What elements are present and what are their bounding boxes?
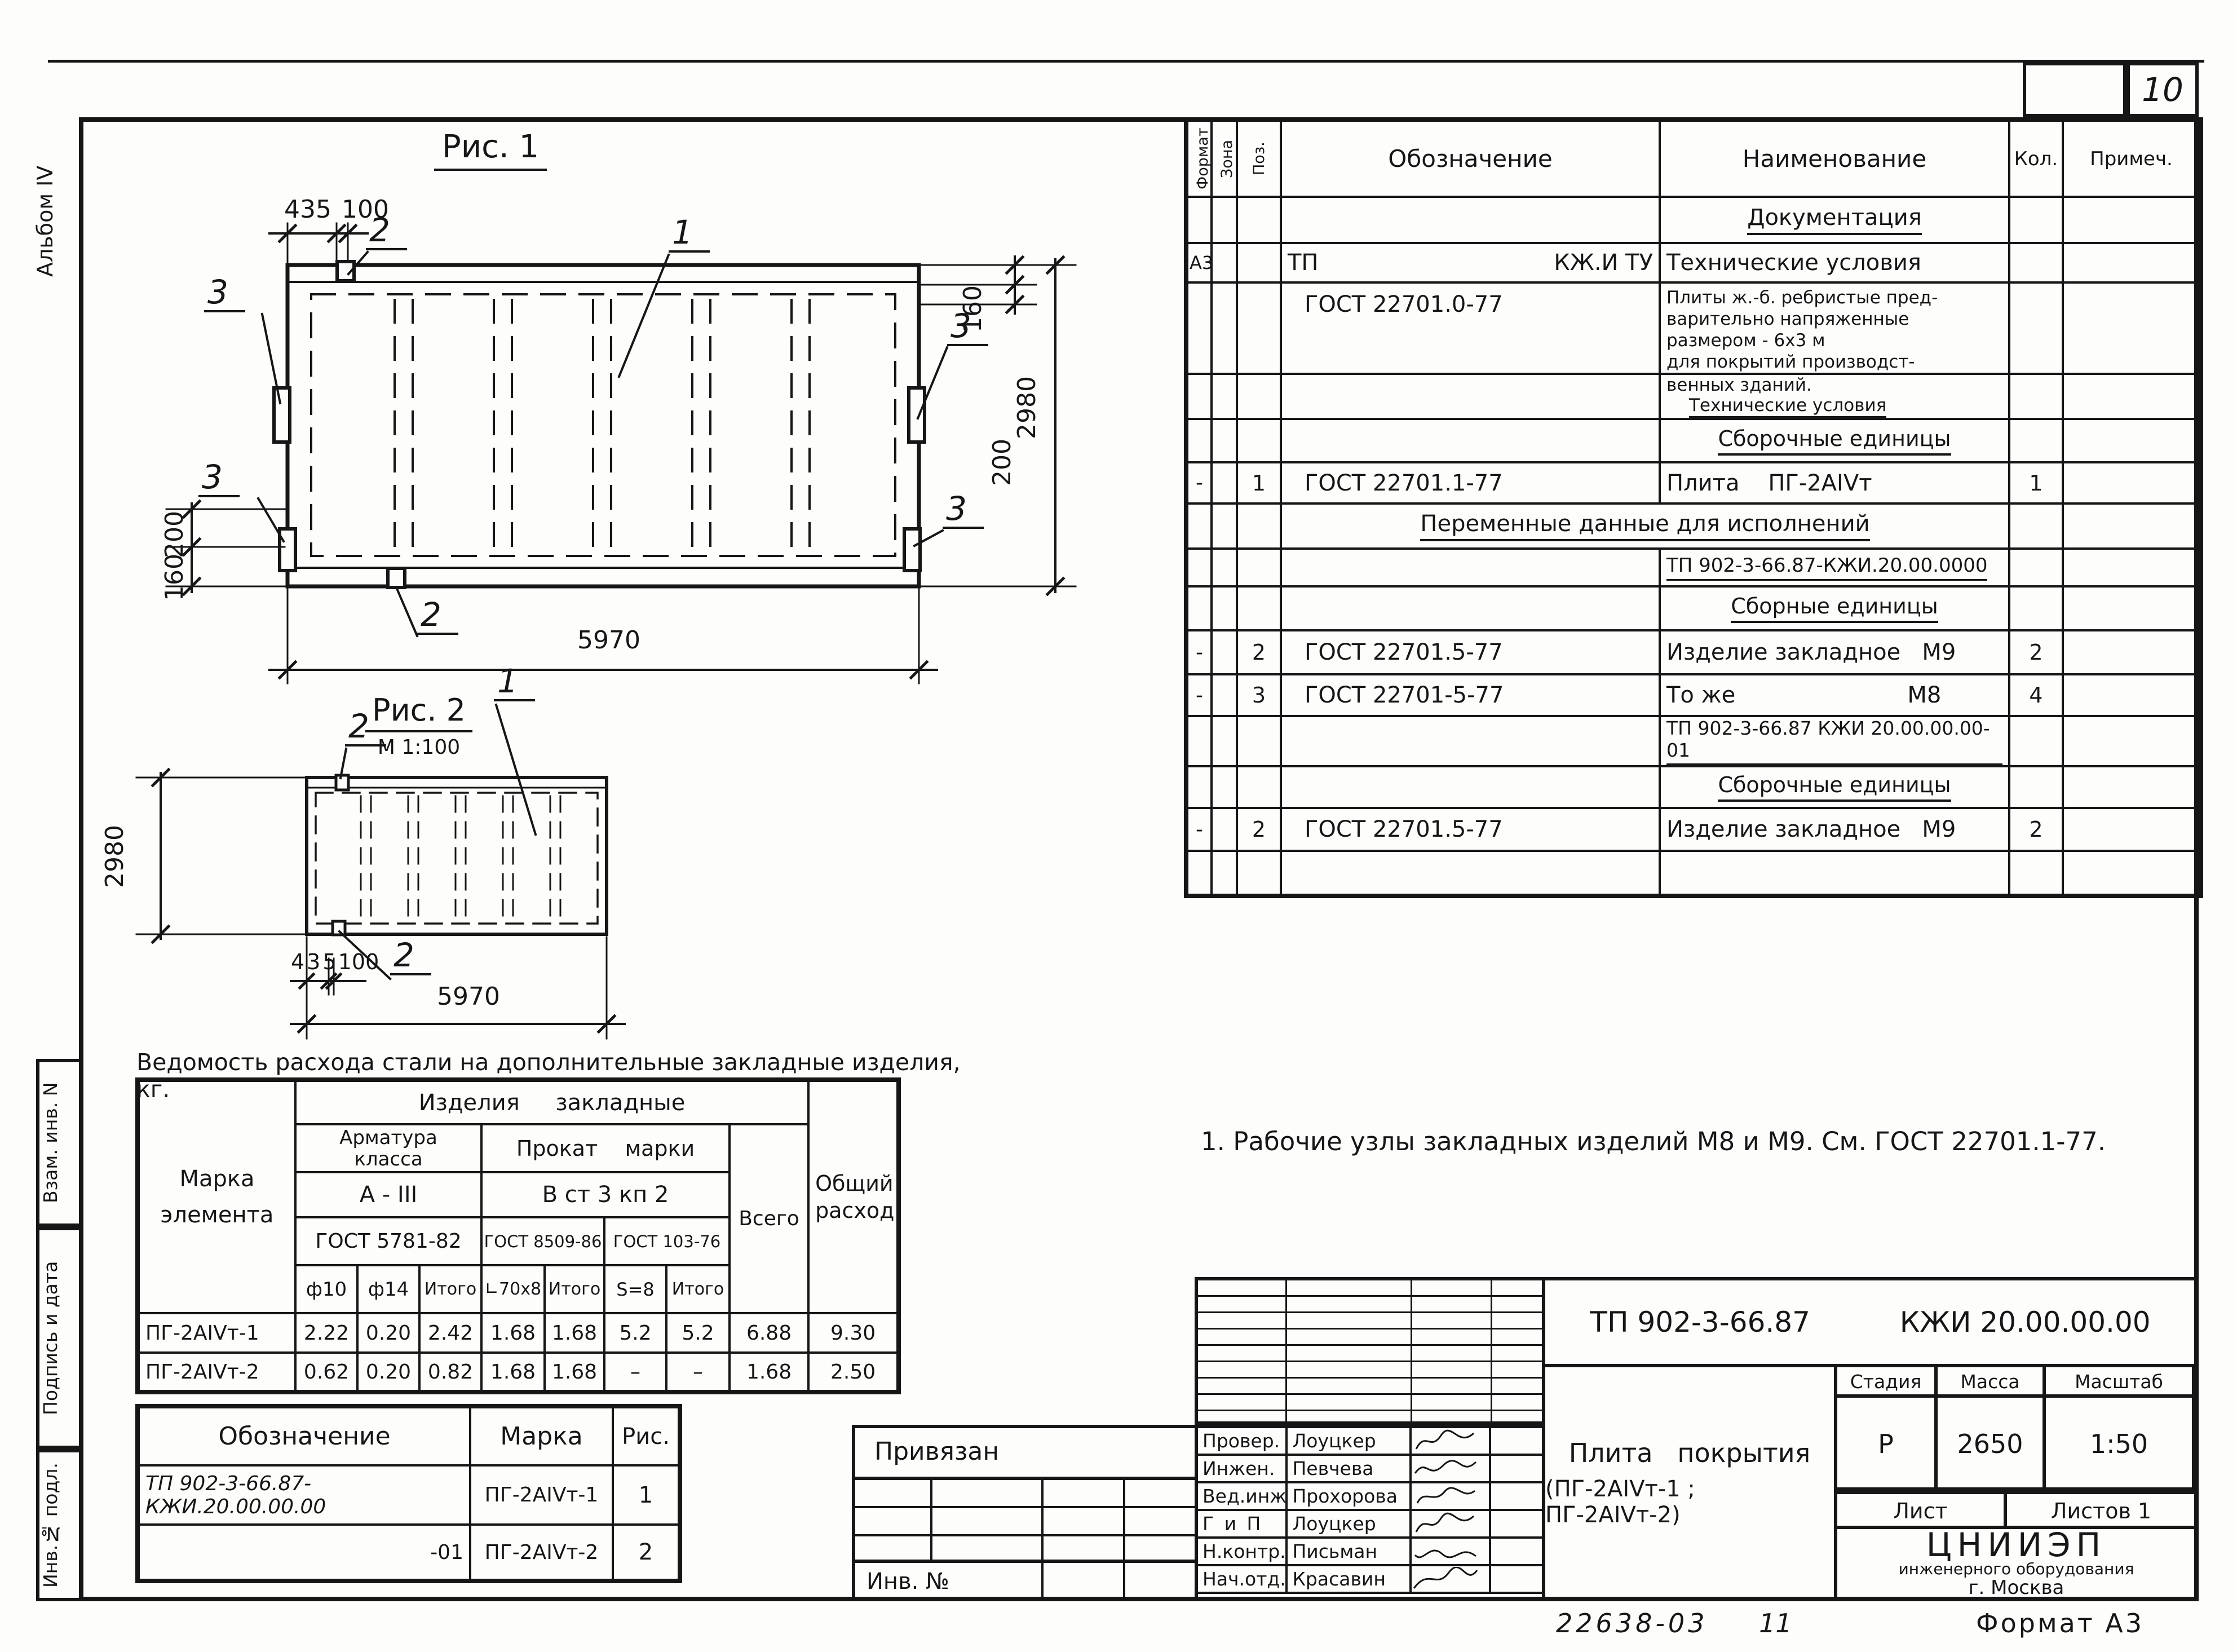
stamp-smm-block: Стадия Масса Масштаб Р 2650 1:50 — [1834, 1364, 2199, 1494]
spec-col-kol: Кол. — [2009, 120, 2063, 197]
fig1-rib-contour — [311, 294, 895, 556]
org-city: г. Москва — [1969, 1578, 2064, 1598]
spec-col-name: Наименование — [1660, 120, 2009, 197]
stamp-name: Прохорова — [1288, 1483, 1412, 1511]
fig2-callout-2-top: 2 — [345, 709, 386, 747]
designation-table: Обозначение Марка Рис. ТП 902-3-66.87-КЖ… — [135, 1404, 682, 1583]
steel-table: Марка элемента Изделия закладные Общий р… — [135, 1077, 901, 1394]
steel-h-itogo3: Итого — [666, 1265, 730, 1313]
spec-row-sborochnye-1: Сборочные единицы — [1186, 419, 2201, 462]
signature-cell — [1412, 1511, 1491, 1539]
des-row-2: -01 ПГ-2АIVт-2 2 — [138, 1525, 680, 1581]
spec-row-gost0b: венных зданий.Технические условия — [1186, 374, 2201, 419]
stamp-role: Н.контр. — [1198, 1539, 1288, 1566]
spec-col-prim: Примеч. — [2063, 120, 2201, 197]
stamp-name: Лоуцкер — [1288, 1511, 1412, 1539]
fig2-dimension-ticks — [153, 770, 614, 1032]
org-name: ЦНИИЭП — [1926, 1529, 2107, 1561]
fig1-callout-2-top: 2 — [366, 213, 407, 250]
inv-no-label: Инв. № — [855, 1563, 1195, 1594]
steel-h-armatura: Арматура класса — [295, 1124, 481, 1172]
signature-cell — [1412, 1456, 1491, 1483]
stamp-list-row: Лист Листов 1 — [1834, 1491, 2199, 1529]
steel-h-l70: ∟70х8 — [481, 1265, 545, 1313]
stamp-doc-cell: ТП 902-3-66.87 КЖИ 20.00.00.00 — [1542, 1277, 2199, 1367]
stamp-inv-row: Инв. № — [852, 1560, 1198, 1601]
fig1-callout-3-left-bottom: 3 — [198, 460, 240, 497]
stamp-role: Нач.отд. — [1198, 1566, 1288, 1594]
signature-cell — [1412, 1539, 1491, 1566]
steel-h-gost3: ГОСТ 103-76 — [604, 1217, 730, 1265]
stamp-name: Лоуцкер — [1288, 1428, 1412, 1456]
spec-row-dokumentacia: Документация — [1186, 197, 2201, 243]
stamp-role: Вед.инж — [1198, 1483, 1288, 1511]
signature — [1412, 1567, 1479, 1592]
org-descr: инженерного оборудования — [1899, 1561, 2134, 1578]
fig2-callout-1: 1 — [494, 664, 535, 701]
masshtab-header: Масштаб — [2043, 1364, 2195, 1398]
stamp-name: Письман — [1288, 1539, 1412, 1566]
stamp-title-line2: (ПГ-2АIVт-1 ; ПГ-2АIVт-2) — [1545, 1476, 1834, 1528]
fig1-dim-160-left: 160 — [160, 545, 189, 610]
masshtab-value: 1:50 — [2043, 1394, 2195, 1491]
stamp-title-line1: Плита покрытия — [1569, 1438, 1811, 1468]
steel-h-vst: В ст 3 кп 2 — [481, 1172, 730, 1217]
signature — [1412, 1429, 1479, 1454]
fig2-dim-2980: 2980 — [100, 803, 129, 910]
stamp-left-grid — [852, 1477, 1198, 1563]
steel-row-2: ПГ-2АIVт-2 0.62 0.20 0.82 1.68 1.68 – – … — [138, 1353, 899, 1392]
spec-row-sborochnye-2: Сборочные единицы — [1186, 766, 2201, 808]
steel-h-gost2: ГОСТ 8509-86 — [481, 1217, 604, 1265]
signature-cell — [1412, 1483, 1491, 1511]
fig1-callout-1: 1 — [669, 215, 710, 253]
steel-row-1: ПГ-2АIVт-1 2.22 0.20 2.42 1.68 1.68 5.2 … — [138, 1313, 899, 1353]
fig2-dim-5970: 5970 — [426, 982, 511, 1011]
spec-row-sbornye: Сборные единицы — [1186, 586, 2201, 630]
steel-h-f10: ф10 — [295, 1265, 357, 1313]
steel-h-prokat: Прокат марки — [481, 1124, 730, 1172]
fig2-dim-100: 100 — [336, 949, 381, 974]
spec-row-plita: - 1 ГОСТ 22701.1-77 Плита ПГ-2АIVт 1 — [1186, 462, 2201, 503]
steel-h-marka: Марка элемента — [138, 1080, 295, 1313]
drawing-sheet: 10 Альбом IV Взам. инв. N Подпись и дата… — [0, 0, 2237, 1652]
steel-h-vsego: Всего — [730, 1124, 808, 1313]
fig1-dim-5970: 5970 — [564, 626, 654, 655]
steel-h-gost1: ГОСТ 5781-82 — [295, 1217, 481, 1265]
fig1-title-text: Рис. 1 — [434, 129, 547, 171]
listov-label: Листов 1 — [2004, 1491, 2199, 1529]
signature — [1412, 1539, 1479, 1564]
fig1-dim-435: 435 — [281, 195, 335, 224]
des-h-ris: Рис. — [613, 1406, 680, 1465]
spec-row-m8: - 3 ГОСТ 22701-5-77 То же М8 4 — [1186, 674, 2201, 716]
spec-col-poz: Поз. — [1237, 120, 1281, 197]
steel-h-f14: ф14 — [357, 1265, 419, 1313]
list-label: Лист — [1834, 1491, 2007, 1529]
des-row-1: ТП 902-3-66.87-КЖИ.20.00.00.00 ПГ-2АIVт-… — [138, 1465, 680, 1525]
fig2-embedded-items — [333, 775, 348, 935]
fig2-slab-outline — [307, 778, 607, 934]
spec-row-tu: А3 ТПКЖ.И ТУ Технические условия — [1186, 243, 2201, 282]
signature-cell — [1412, 1428, 1491, 1456]
spec-col-format: Формат — [1186, 120, 1212, 197]
stamp-org-cell: ЦНИИЭП инженерного оборудования г. Москв… — [1834, 1526, 2199, 1601]
spec-row-tp01: ТП 902-3-66.87 КЖИ 20.00.00.00-01 — [1186, 716, 2201, 766]
steel-h-izdeliya: Изделия закладные — [295, 1080, 808, 1124]
stamp-title-cell: Плита покрытия (ПГ-2АIVт-1 ; ПГ-2АIVт-2) — [1542, 1364, 1837, 1601]
signature — [1412, 1512, 1479, 1536]
fig1-callout-2-bottom: 2 — [417, 598, 458, 635]
signature — [1412, 1484, 1479, 1509]
massa-header: Масса — [1934, 1364, 2046, 1398]
spec-row-gost0: ГОСТ 22701.0-77 Плиты ж.-б. ребристые пр… — [1186, 282, 2201, 374]
footer-format: Формат А3 — [1976, 1608, 2144, 1638]
fig1-callout-leaders — [258, 252, 947, 636]
footer-sheet-number: 11 — [1759, 1608, 1792, 1638]
des-h-marka: Марка — [470, 1406, 613, 1465]
stamp-role: Инжен. — [1198, 1456, 1288, 1483]
stadia-value: Р — [1834, 1394, 1938, 1491]
note-text: 1. Рабочие узлы закладных изделий М8 и М… — [1201, 1127, 2193, 1156]
footer-doc-number: 22638-03 — [1556, 1608, 1708, 1638]
fig1-slab-outline — [288, 265, 919, 586]
fig1-transverse-ribs — [395, 300, 810, 551]
fig1-callout-3-right-top: 3 — [947, 309, 988, 346]
steel-h-obshiy: Общий расход — [808, 1080, 899, 1313]
spec-row-m9-2: - 2 ГОСТ 22701.5-77 Изделие закладное М9… — [1186, 808, 2201, 851]
stamp-role: Провер. — [1198, 1428, 1288, 1456]
spec-row-tp0000: ТП 902-3-66.87-КЖИ.20.00.0000 — [1186, 549, 2201, 586]
spec-row-peremennye: Переменные данные для исполнений — [1186, 503, 2201, 549]
fig1-dim-2980: 2980 — [1013, 356, 1041, 459]
fig2-rib-contour — [316, 793, 598, 924]
des-h-oboz: Обозначение — [138, 1406, 470, 1465]
fig2-dimension-lines — [136, 773, 625, 1039]
fig1-title: Рис. 1 — [434, 129, 547, 171]
stamp-privyazan-cell: Привязан — [852, 1425, 1198, 1480]
stamp-signature-block: Провер. Лоуцкер Инжен. Певчева Вед.инж П… — [1195, 1425, 1545, 1601]
doc-number-left: ТП 902-3-66.87 — [1590, 1306, 1810, 1339]
spec-row-m9-1: - 2 ГОСТ 22701.5-77 Изделие закладное М9… — [1186, 630, 2201, 674]
fig2-dim-435: 435 — [291, 949, 334, 974]
signature — [1412, 1456, 1479, 1481]
spec-row-empty — [1186, 851, 2201, 896]
stamp-role: Г и П — [1198, 1511, 1288, 1539]
spec-table: Формат Зона Поз. Обозначение Наименовани… — [1184, 117, 2203, 898]
massa-value: 2650 — [1934, 1394, 2046, 1491]
spec-col-oboz: Обозначение — [1281, 120, 1660, 197]
fig1-callout-3-left-top: 3 — [204, 275, 245, 312]
fig1-embedded-items — [274, 262, 925, 588]
privyazan-label: Привязан — [855, 1428, 1195, 1466]
steel-h-aiii: А - III — [295, 1172, 481, 1217]
fig2-callout-2-bottom: 2 — [390, 938, 431, 975]
doc-number-right: КЖИ 20.00.00.00 — [1900, 1306, 2151, 1339]
stamp-name: Красавин — [1288, 1566, 1412, 1594]
stamp-changelog-grid — [1195, 1277, 1545, 1425]
spec-col-zona: Зона — [1212, 120, 1237, 197]
signature-cell — [1412, 1566, 1491, 1594]
stadia-header: Стадия — [1834, 1364, 1938, 1398]
steel-h-itogo1: Итого — [419, 1265, 481, 1313]
fig1-callout-3-right-bottom: 3 — [943, 492, 984, 529]
fig1-dimension-lines — [166, 223, 1076, 683]
stamp-name: Певчева — [1288, 1456, 1412, 1483]
steel-h-itogo2: Итого — [545, 1265, 604, 1313]
steel-h-s8: S=8 — [604, 1265, 666, 1313]
